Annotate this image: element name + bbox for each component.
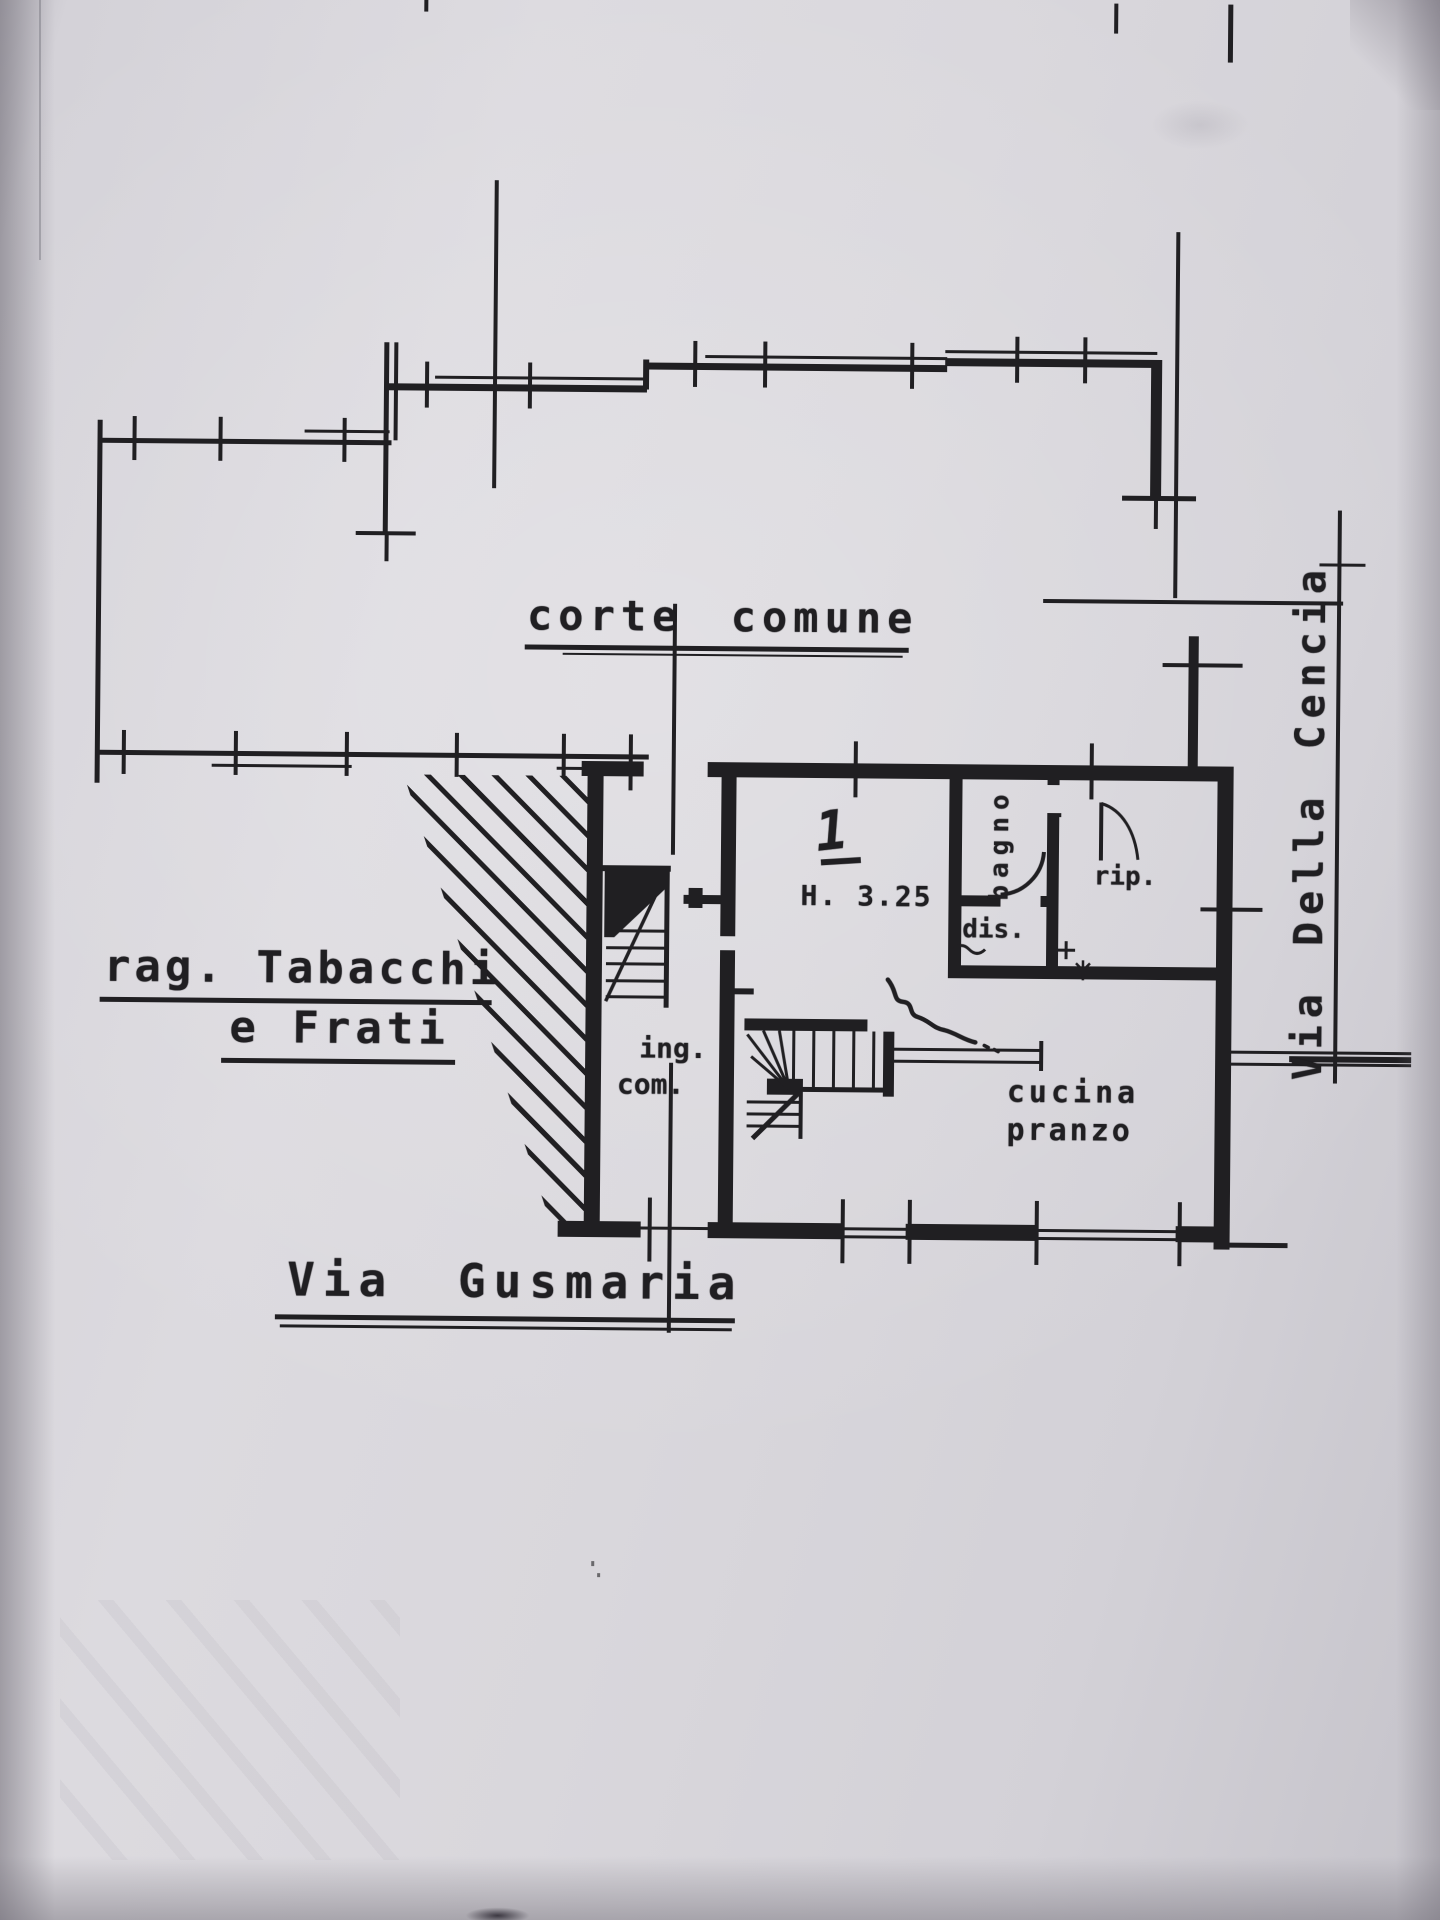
stair-diagonal [752, 1090, 800, 1138]
neighbor-label-line1: rag. Tabacchi [104, 941, 501, 995]
revision-squiggle [887, 980, 976, 1043]
tilde-mark [953, 945, 985, 953]
stair-winder-lines [747, 1030, 790, 1088]
courtyard-label: corte comune [527, 590, 919, 642]
room-label-ing-line2: com. [617, 1067, 685, 1101]
tick-mark [1319, 563, 1365, 566]
plus-mark [1057, 941, 1075, 959]
small-dots [593, 1561, 599, 1577]
room-label-cucina-line1: cucina [1007, 1075, 1140, 1111]
street-label-bottom: Via Gusmaria [287, 1252, 744, 1310]
room-label-bagno: bagno [985, 787, 1016, 901]
asterisk-mark [1076, 960, 1090, 980]
revision-squiggle-dots [984, 1045, 998, 1051]
scanned-floor-plan-photo: corte comune rag. Tabacchi e Frati Via G… [0, 0, 1440, 1920]
neighbor-label-line2: e Frati [229, 1002, 450, 1055]
room-label-dis: dis. [962, 914, 1025, 945]
room-label-ing-line1: ing. [639, 1031, 707, 1065]
floor-plan-drawing: corte comune rag. Tabacchi e Frati Via G… [0, 0, 1440, 1920]
ceiling-height-label: H. 3.25 [800, 879, 932, 913]
door-leaf-rip [1101, 802, 1102, 860]
stair-band [604, 867, 669, 938]
unit-number-mark: 1 [812, 798, 851, 864]
room-label-rip: rip. [1094, 861, 1157, 892]
door-arc-rip [1101, 803, 1138, 859]
street-label-right: Via Della Cencia [1285, 563, 1336, 1081]
room-label-cucina-line2: pranzo [1006, 1113, 1133, 1149]
